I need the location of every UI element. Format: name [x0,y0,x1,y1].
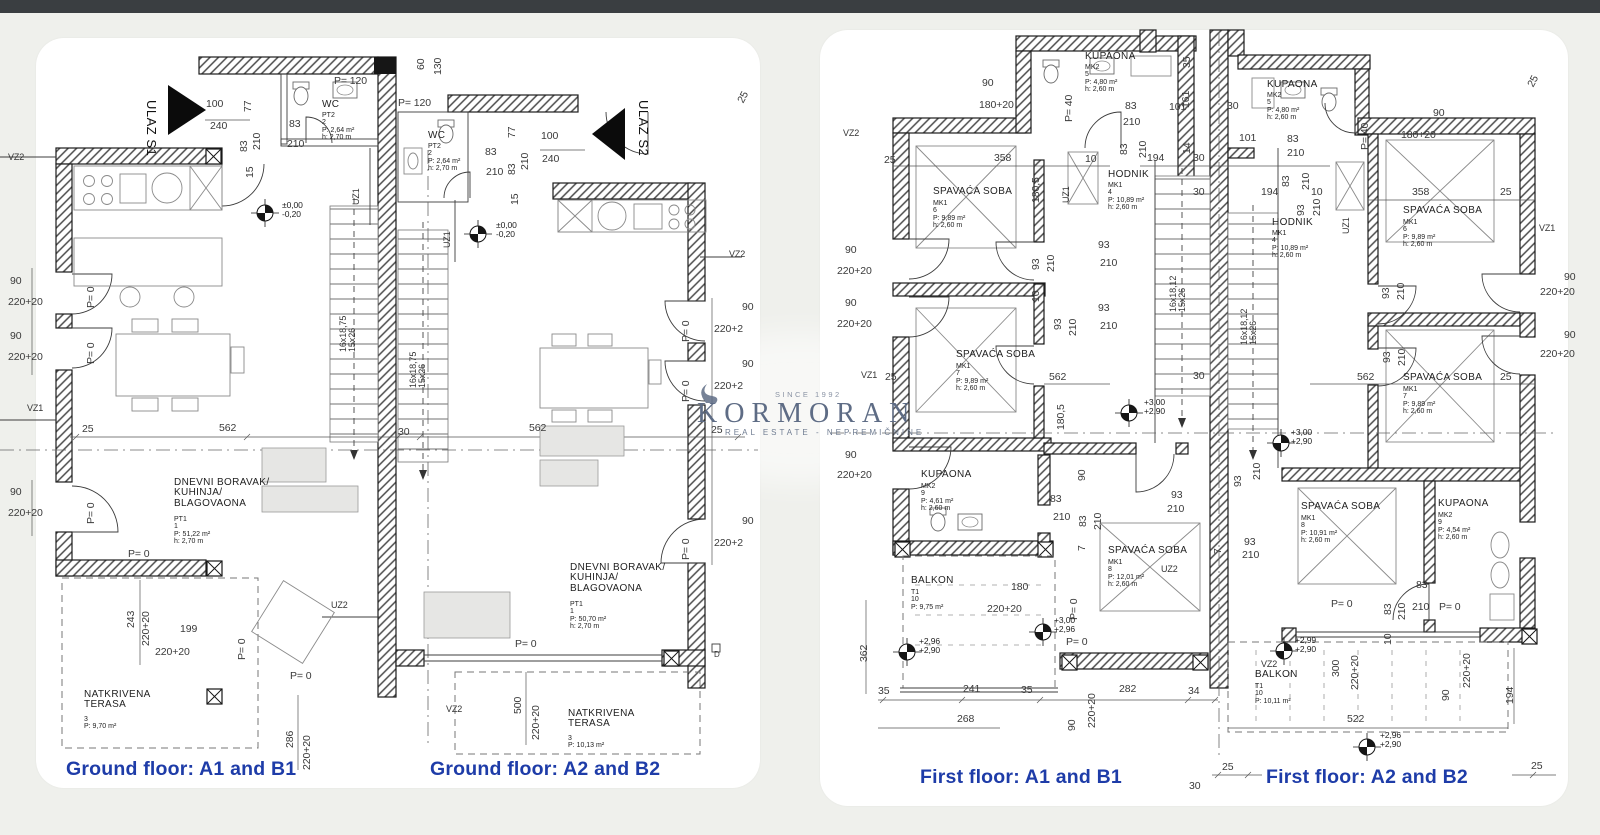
ground-floor-geometry [0,57,758,770]
watermark-bird-icon [701,384,717,403]
entrance-arrow-s1 [168,85,206,135]
first-floor-geometry [830,30,1556,778]
floorplan-drawing [0,0,1600,835]
entrance-arrow-s2 [592,108,625,160]
floorplan-screenshot: ULAZ S1100240778321083210WCPT2 2 P: 2,64… [0,0,1600,835]
